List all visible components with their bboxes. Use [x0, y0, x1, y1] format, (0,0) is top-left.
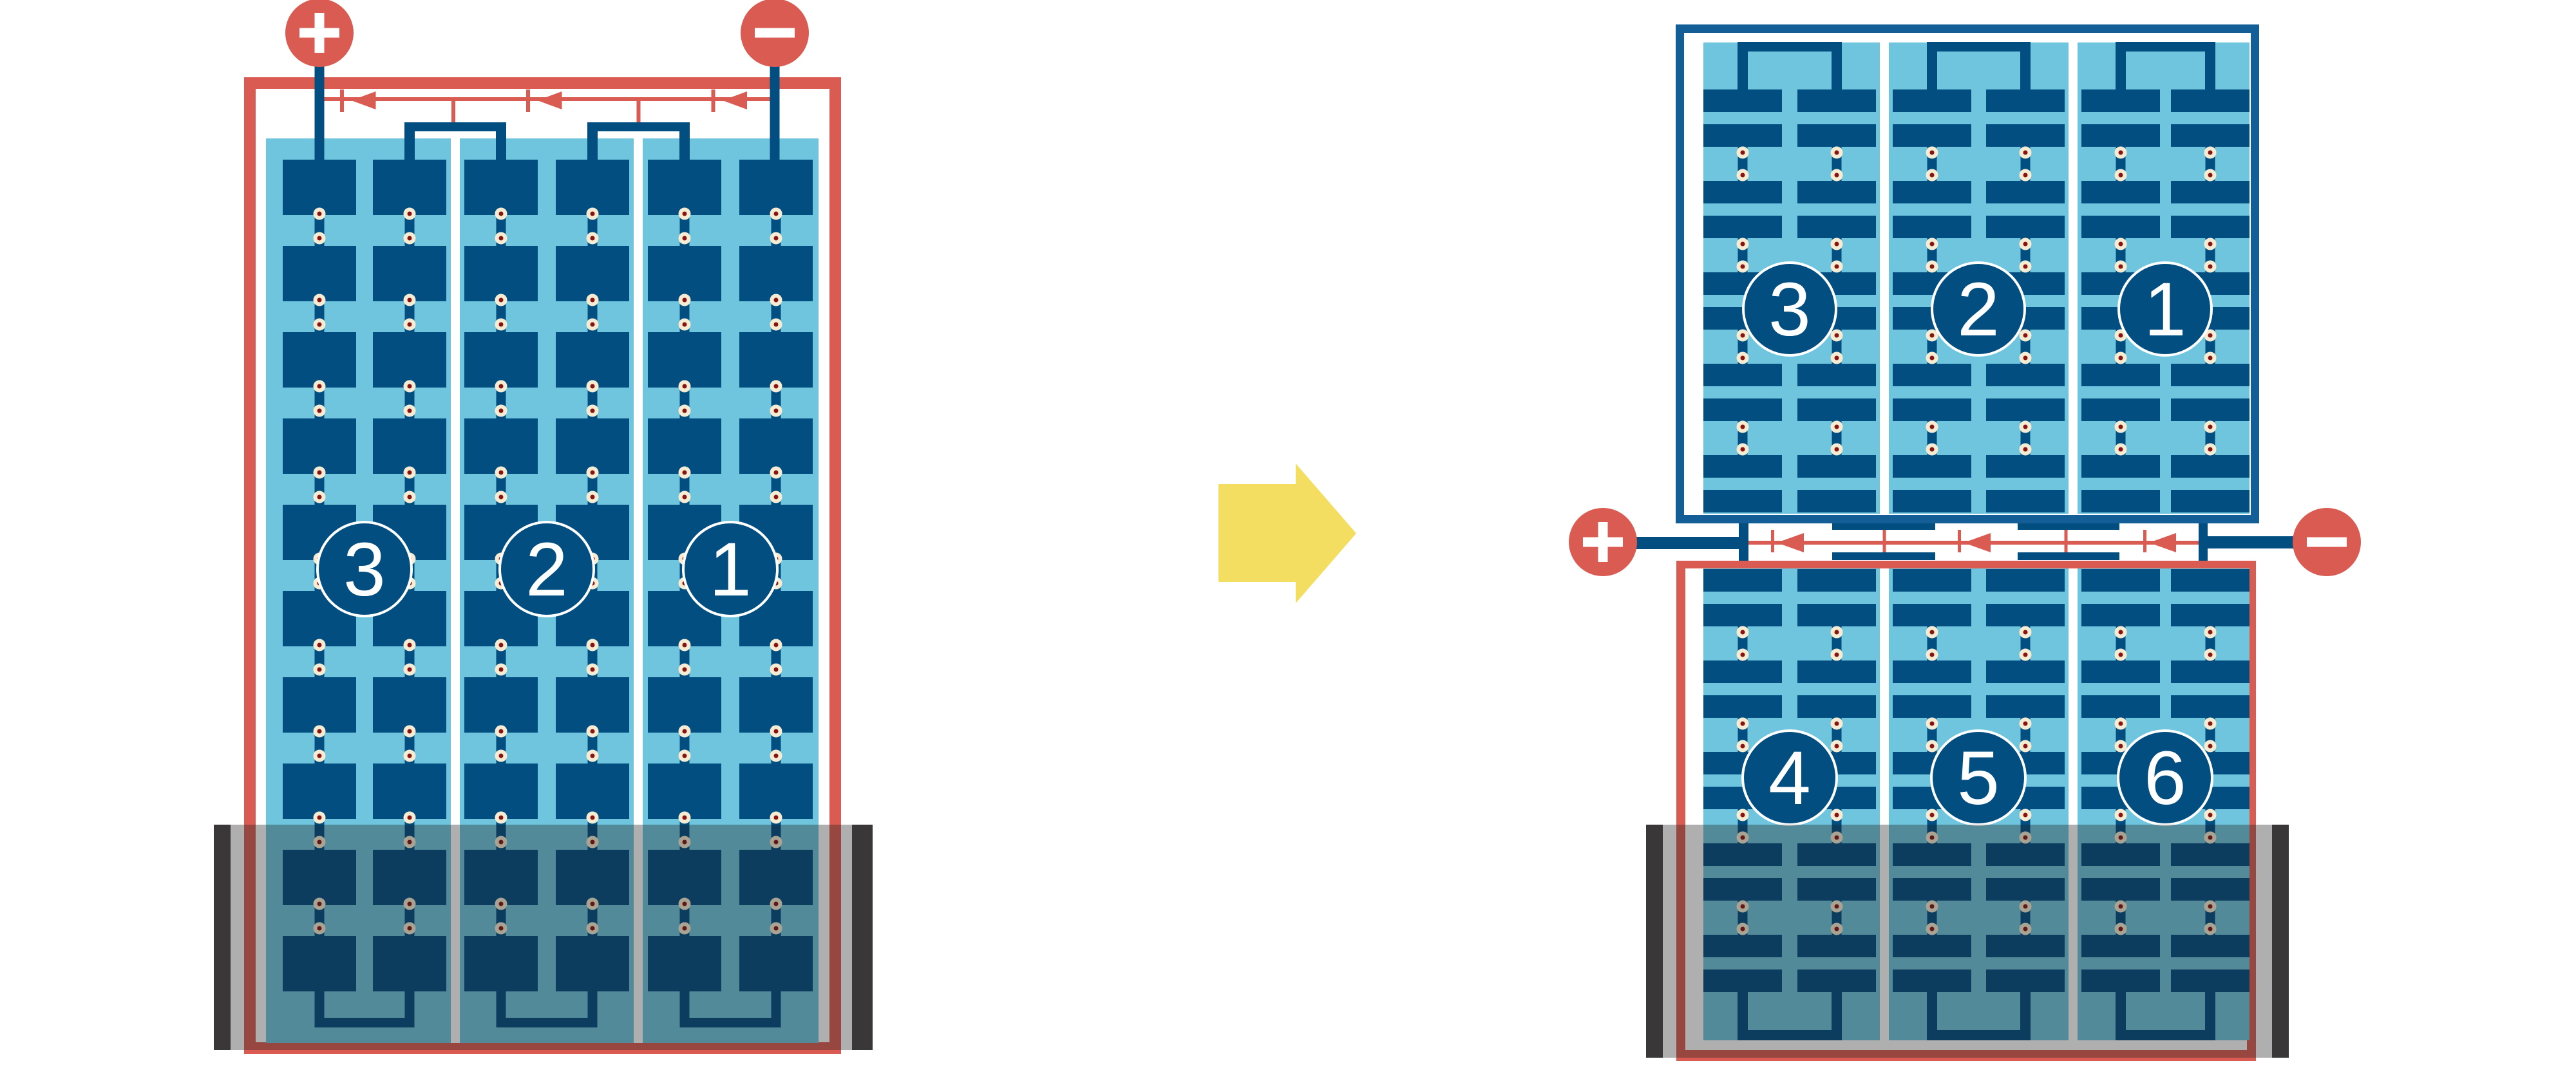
svg-text:2: 2: [526, 527, 568, 612]
svg-text:3: 3: [343, 527, 386, 612]
svg-text:5: 5: [1957, 736, 2000, 821]
svg-text:6: 6: [2144, 736, 2186, 821]
svg-text:1: 1: [2144, 267, 2186, 352]
svg-text:4: 4: [1768, 736, 1811, 821]
svg-text:2: 2: [1957, 267, 2000, 352]
svg-text:1: 1: [709, 527, 752, 612]
svg-text:3: 3: [1768, 267, 1811, 352]
